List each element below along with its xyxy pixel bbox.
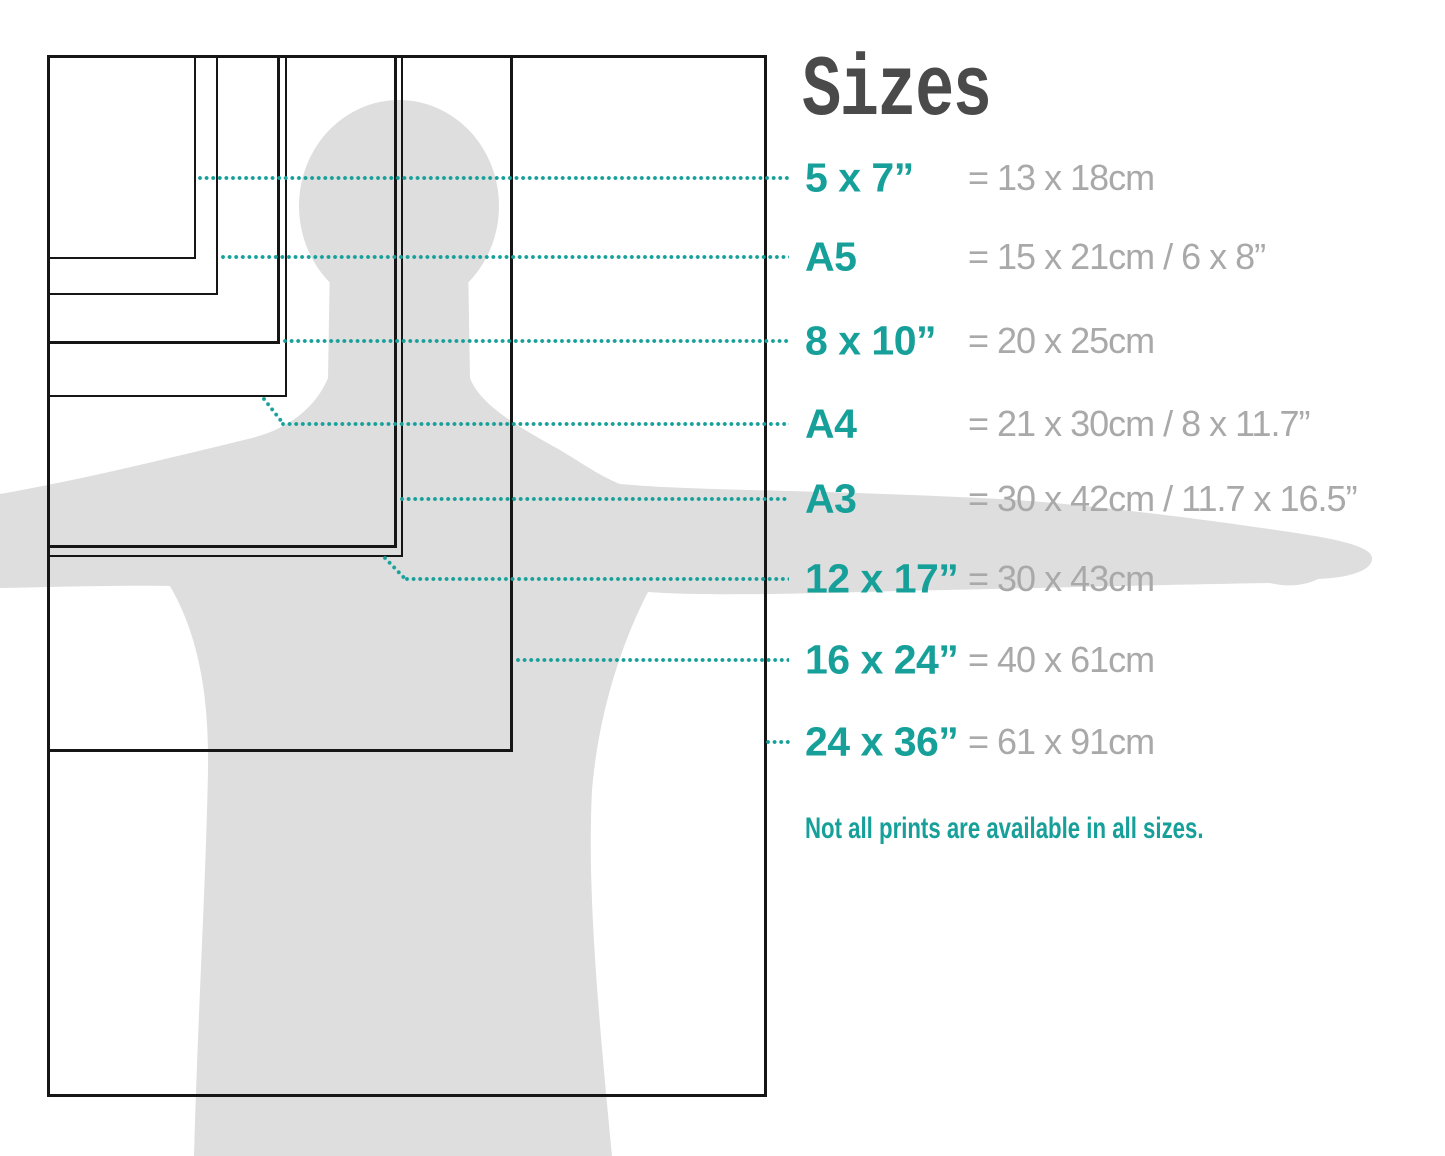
leader-line-5x7 xyxy=(197,175,789,181)
metric-value: = 61 x 91cm xyxy=(968,721,1154,763)
page-title: Sizes xyxy=(802,48,991,134)
metric-value: = 30 x 43cm xyxy=(968,558,1154,600)
leader-line-12x17 xyxy=(404,576,789,582)
size-label: 5 x 7” xyxy=(805,155,914,202)
leader-line-a5 xyxy=(220,254,789,260)
size-label: 12 x 17” xyxy=(805,556,958,603)
leader-line-16x24 xyxy=(515,657,789,663)
size-label: 24 x 36” xyxy=(805,719,958,766)
size-label: A5 xyxy=(805,234,856,281)
print-size-guide: Sizes 5 x 7” = 13 x 18cm A5 = 15 x 21cm … xyxy=(0,0,1445,1156)
leader-line-a3 xyxy=(399,496,789,502)
metric-value: = 13 x 18cm xyxy=(968,157,1154,199)
size-label: 16 x 24” xyxy=(805,637,958,684)
metric-value: = 21 x 30cm / 8 x 11.7” xyxy=(968,403,1310,445)
leader-line-a4 xyxy=(280,421,789,427)
metric-value: = 15 x 21cm / 6 x 8” xyxy=(968,236,1265,278)
leader-line-8x10 xyxy=(282,338,789,344)
metric-value: = 40 x 61cm xyxy=(968,639,1154,681)
metric-value: = 20 x 25cm xyxy=(968,320,1154,362)
size-rectangle-5x7 xyxy=(47,55,196,259)
size-label: 8 x 10” xyxy=(805,318,936,365)
leader-line-24x36 xyxy=(765,739,791,745)
availability-note: Not all prints are available in all size… xyxy=(805,812,1204,846)
size-label: A4 xyxy=(805,401,856,448)
metric-value: = 30 x 42cm / 11.7 x 16.5” xyxy=(968,478,1357,520)
size-label: A3 xyxy=(805,476,856,523)
